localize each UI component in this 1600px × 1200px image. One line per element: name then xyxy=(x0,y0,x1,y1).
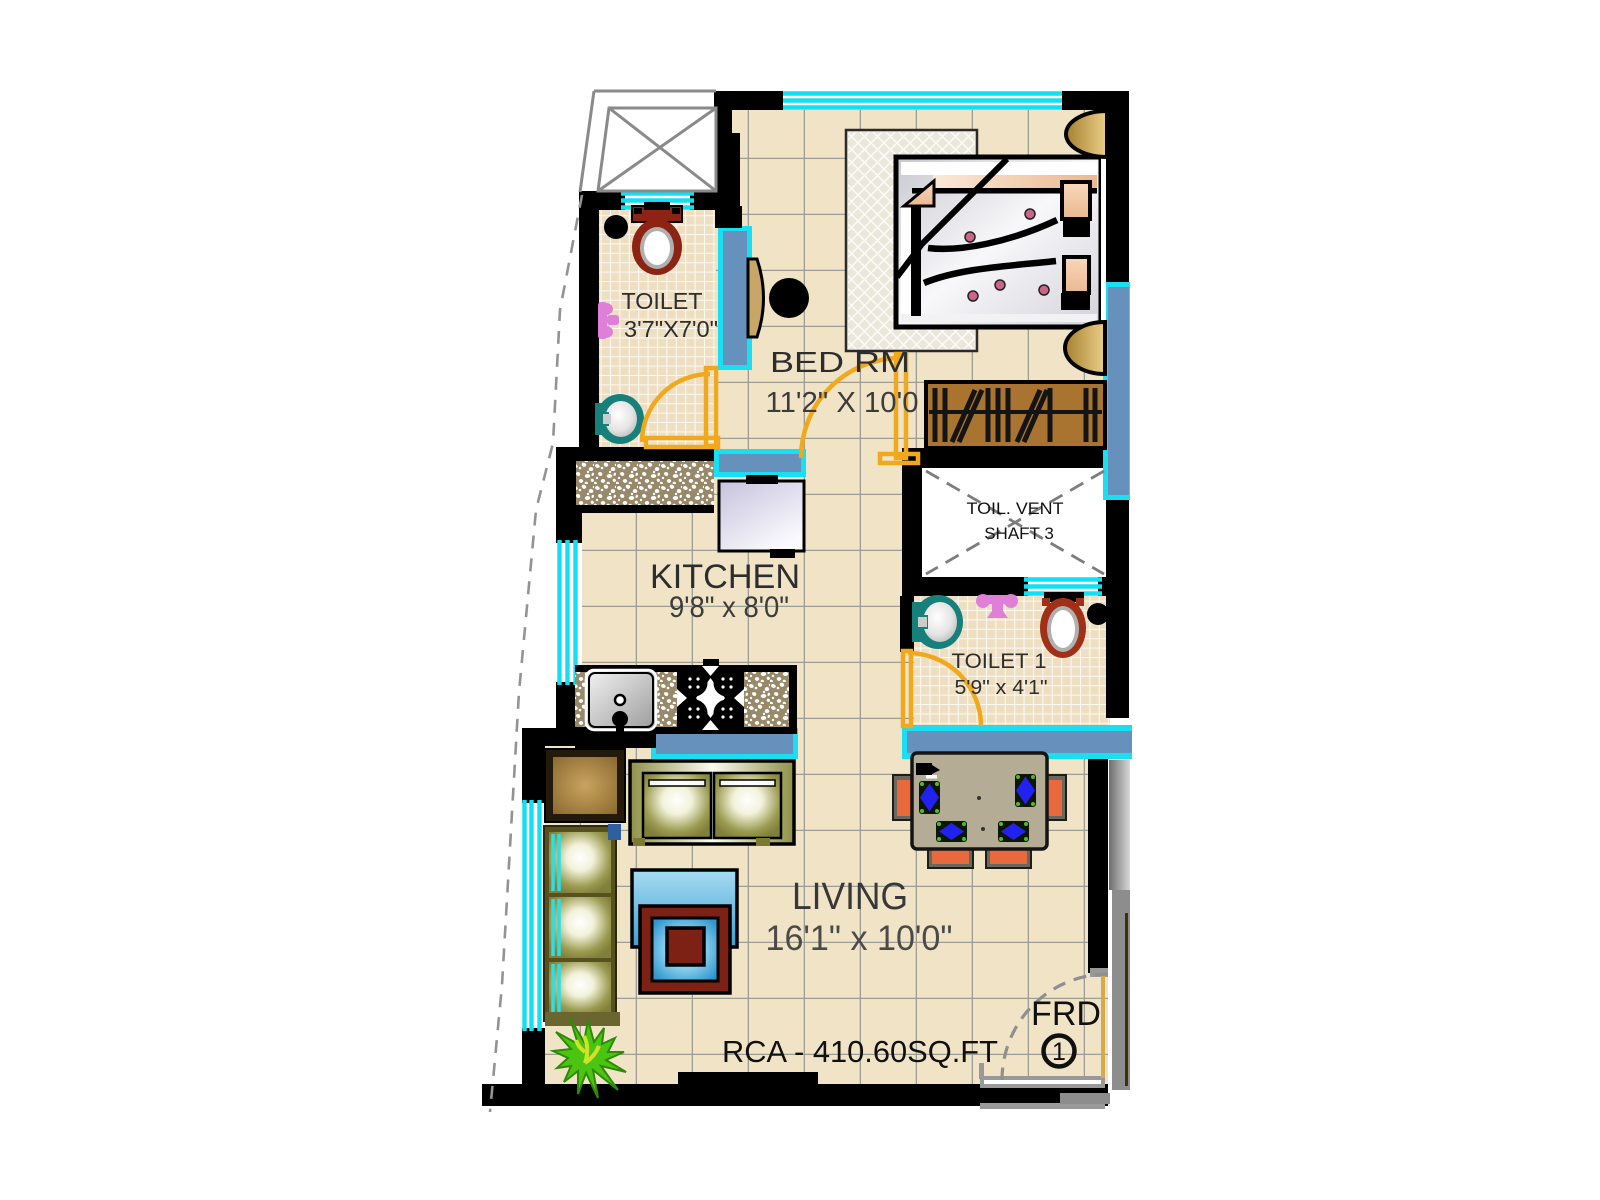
svg-text:16'1" x 10'0": 16'1" x 10'0" xyxy=(766,919,953,958)
svg-text:FRD: FRD xyxy=(1031,995,1101,1033)
svg-text:11'2" X 10'0: 11'2" X 10'0 xyxy=(766,387,919,419)
svg-text:RCA - 410.60SQ.FT: RCA - 410.60SQ.FT xyxy=(722,1034,998,1069)
svg-text:TOILET 1: TOILET 1 xyxy=(952,650,1047,673)
svg-text:TOIL. VENT: TOIL. VENT xyxy=(967,499,1064,518)
svg-text:TOILET: TOILET xyxy=(622,288,703,314)
svg-text:3'7"X7'0": 3'7"X7'0" xyxy=(624,316,718,342)
svg-text:9'8" x 8'0": 9'8" x 8'0" xyxy=(669,591,789,624)
svg-text:SHAFT 3: SHAFT 3 xyxy=(984,524,1054,543)
svg-text:5'9" x 4'1": 5'9" x 4'1" xyxy=(955,677,1048,699)
svg-text:1: 1 xyxy=(1052,1038,1066,1066)
svg-text:LIVING: LIVING xyxy=(792,876,908,918)
svg-text:BED RM: BED RM xyxy=(770,347,910,379)
